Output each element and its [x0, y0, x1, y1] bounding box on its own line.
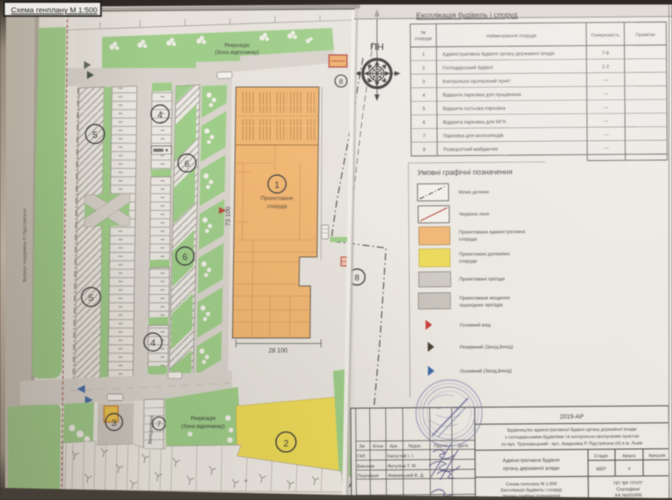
svg-text:Схема генплану М 1:500: Схема генплану М 1:500: [11, 6, 97, 15]
